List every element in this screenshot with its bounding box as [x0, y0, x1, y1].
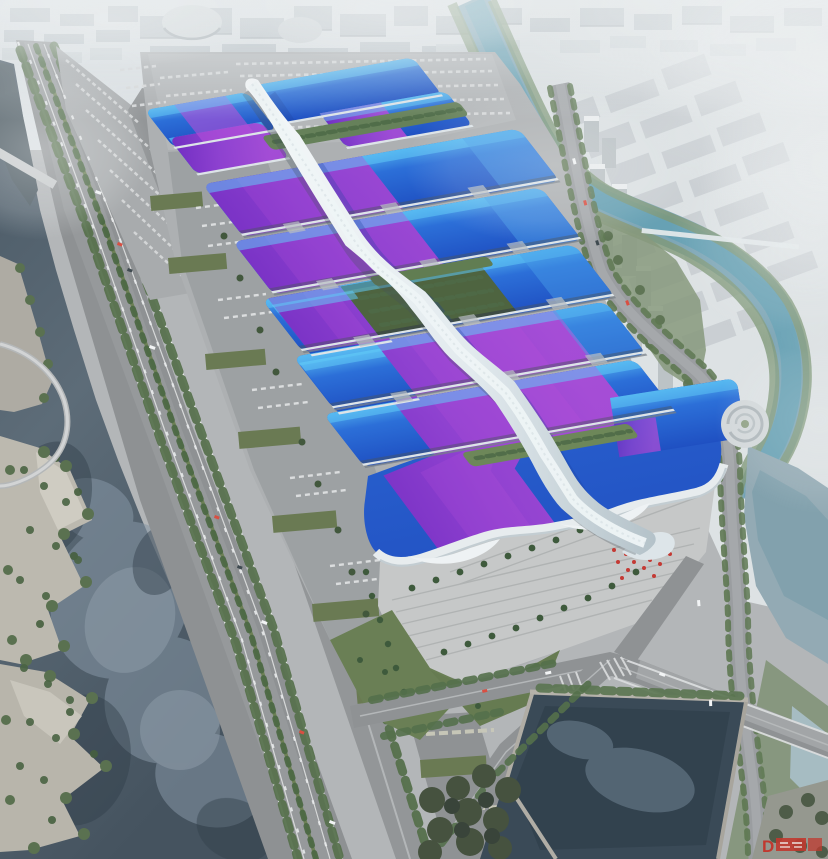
svg-text:D: D: [762, 837, 774, 856]
